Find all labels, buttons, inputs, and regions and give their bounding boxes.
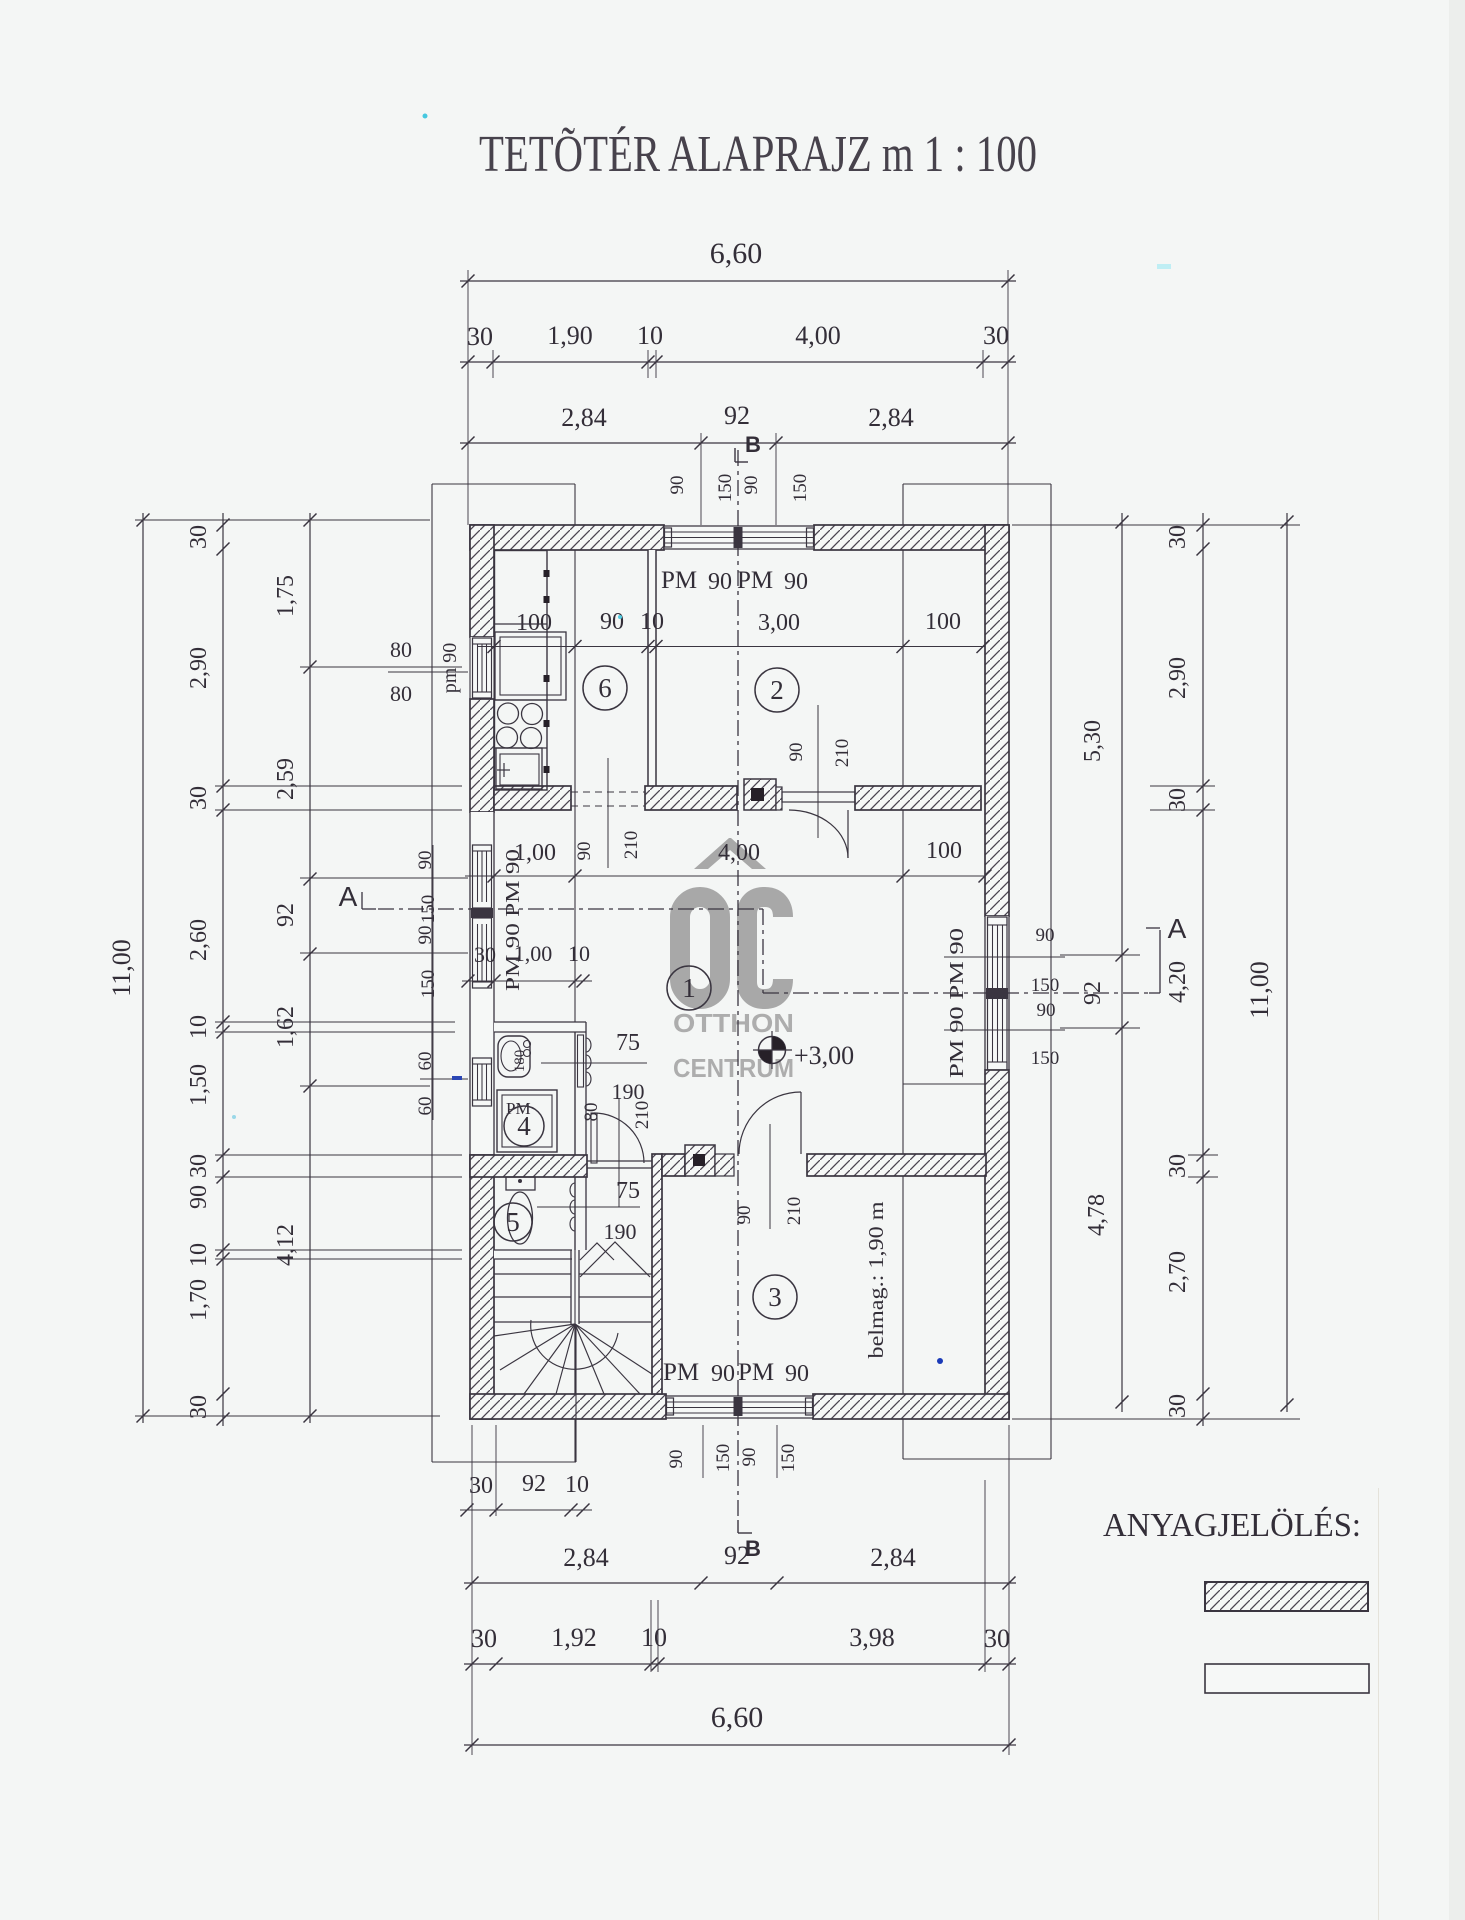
- svg-text:210: 210: [832, 739, 853, 768]
- svg-text:3,98: 3,98: [849, 1623, 895, 1652]
- svg-text:150: 150: [790, 474, 811, 503]
- svg-text:10: 10: [641, 1623, 667, 1652]
- svg-text:2,84: 2,84: [563, 1543, 609, 1572]
- svg-text:80: 80: [390, 681, 412, 706]
- svg-text:100: 100: [925, 609, 961, 635]
- svg-text:3,00: 3,00: [758, 610, 800, 636]
- svg-text:90: 90: [1036, 925, 1055, 946]
- svg-text:90: 90: [741, 476, 762, 495]
- svg-text:1,70: 1,70: [186, 1279, 212, 1321]
- svg-text:10: 10: [565, 1472, 589, 1498]
- svg-text:30: 30: [1165, 788, 1191, 812]
- svg-text:150: 150: [715, 474, 736, 503]
- svg-text:ANYAGJELÖLÉS:: ANYAGJELÖLÉS:: [1103, 1507, 1361, 1544]
- svg-text:75: 75: [616, 1030, 640, 1056]
- svg-text:30: 30: [983, 321, 1009, 350]
- svg-text:2,59: 2,59: [273, 758, 299, 800]
- svg-text:4,00: 4,00: [795, 321, 841, 350]
- svg-text:90: 90: [708, 569, 732, 595]
- svg-text:30: 30: [186, 525, 212, 549]
- svg-text:A: A: [339, 881, 358, 912]
- svg-text:PM: PM: [738, 1359, 774, 1386]
- svg-text:3: 3: [768, 1282, 782, 1312]
- svg-text:2,84: 2,84: [868, 403, 914, 432]
- svg-text:92: 92: [522, 1471, 546, 1497]
- svg-text:1,92: 1,92: [551, 1623, 597, 1652]
- svg-text:210: 210: [784, 1197, 805, 1226]
- svg-text:5,30: 5,30: [1080, 720, 1106, 762]
- svg-text:4: 4: [517, 1111, 531, 1141]
- svg-text:4,20: 4,20: [1165, 961, 1191, 1003]
- svg-text:2,90: 2,90: [1165, 657, 1191, 699]
- svg-text:2,84: 2,84: [870, 1543, 916, 1572]
- svg-text:210: 210: [632, 1101, 653, 1130]
- svg-text:10: 10: [186, 1015, 212, 1039]
- svg-text:PM: PM: [737, 567, 773, 594]
- svg-text:80: 80: [581, 1103, 602, 1122]
- svg-text:92: 92: [724, 401, 750, 430]
- svg-text:75: 75: [616, 1178, 640, 1204]
- svg-text:90: 90: [739, 1448, 760, 1467]
- svg-text:2: 2: [770, 675, 784, 705]
- svg-text:2,60: 2,60: [186, 919, 212, 961]
- svg-text:30: 30: [474, 942, 496, 967]
- svg-text:90: 90: [711, 1361, 735, 1387]
- svg-text:4,12: 4,12: [273, 1224, 299, 1266]
- svg-text:30: 30: [186, 1395, 212, 1419]
- svg-text:150: 150: [418, 970, 439, 999]
- svg-text:6,60: 6,60: [711, 1701, 764, 1734]
- svg-text:30: 30: [471, 1624, 497, 1653]
- svg-text:150: 150: [418, 895, 439, 924]
- svg-text:150: 150: [778, 1444, 799, 1473]
- svg-text:1,62: 1,62: [273, 1006, 299, 1048]
- svg-text:B: B: [745, 1536, 761, 1561]
- svg-text:11,00: 11,00: [1245, 961, 1274, 1019]
- svg-text:2,90: 2,90: [186, 647, 212, 689]
- svg-text:30: 30: [1165, 1154, 1191, 1178]
- svg-text:5: 5: [506, 1207, 520, 1237]
- svg-text:30: 30: [186, 1154, 212, 1178]
- svg-text:2,70: 2,70: [1165, 1251, 1191, 1293]
- svg-text:90: 90: [600, 609, 624, 635]
- svg-text:180: 180: [512, 1050, 528, 1073]
- svg-text:150: 150: [713, 1444, 734, 1473]
- svg-text:+3,00: +3,00: [794, 1041, 854, 1070]
- svg-text:190: 190: [604, 1219, 637, 1244]
- svg-text:90: 90: [785, 1361, 809, 1387]
- svg-text:OTTHON: OTTHON: [673, 1008, 794, 1038]
- svg-text:80: 80: [390, 637, 412, 662]
- svg-text:CENTRUM: CENTRUM: [673, 1053, 794, 1083]
- svg-text:4,78: 4,78: [1084, 1194, 1110, 1236]
- svg-text:90: 90: [574, 842, 595, 861]
- svg-text:90: 90: [786, 743, 807, 762]
- svg-text:PM 90 PM 90: PM 90 PM 90: [502, 849, 524, 991]
- svg-text:30: 30: [469, 1473, 493, 1499]
- svg-text:PM: PM: [661, 567, 697, 594]
- svg-text:6,60: 6,60: [710, 237, 763, 270]
- svg-text:pm 90: pm 90: [439, 643, 461, 694]
- svg-text:1: 1: [682, 973, 696, 1003]
- svg-text:2,84: 2,84: [561, 403, 607, 432]
- svg-text:1,90: 1,90: [547, 321, 593, 350]
- svg-text:90: 90: [666, 1450, 687, 1469]
- svg-text:10: 10: [637, 321, 663, 350]
- svg-text:150: 150: [1031, 975, 1060, 996]
- svg-text:90: 90: [186, 1185, 212, 1209]
- svg-text:A: A: [1168, 913, 1187, 944]
- svg-text:190: 190: [612, 1079, 645, 1104]
- svg-text:4,00: 4,00: [718, 840, 760, 866]
- svg-text:150: 150: [1031, 1048, 1060, 1069]
- svg-text:6: 6: [598, 673, 612, 703]
- svg-text:10: 10: [568, 941, 590, 966]
- svg-text:10: 10: [640, 609, 664, 635]
- svg-text:30: 30: [1165, 525, 1191, 549]
- svg-text:PM: PM: [663, 1359, 699, 1386]
- svg-text:PM 90 PM 90: PM 90 PM 90: [946, 928, 968, 1078]
- svg-text:30: 30: [1165, 1394, 1191, 1418]
- svg-text:90: 90: [734, 1206, 755, 1225]
- svg-text:B: B: [745, 432, 761, 457]
- svg-text:30: 30: [186, 786, 212, 810]
- svg-text:92: 92: [273, 903, 299, 927]
- svg-text:90: 90: [1037, 1000, 1056, 1021]
- svg-text:210: 210: [621, 831, 642, 860]
- svg-text:1,75: 1,75: [273, 575, 299, 617]
- svg-text:TETÕTÉR ALAPRAJZ m 1 : 100: TETÕTÉR ALAPRAJZ m 1 : 100: [479, 125, 1037, 183]
- svg-text:100: 100: [926, 838, 962, 864]
- svg-text:1,50: 1,50: [186, 1064, 212, 1106]
- svg-text:10: 10: [186, 1243, 212, 1267]
- svg-text:belmag.: 1,90 m: belmag.: 1,90 m: [864, 1202, 888, 1359]
- svg-text:30: 30: [467, 322, 493, 351]
- svg-text:90: 90: [784, 569, 808, 595]
- svg-text:90: 90: [667, 476, 688, 495]
- svg-text:11,00: 11,00: [107, 939, 136, 997]
- svg-text:30: 30: [984, 1624, 1010, 1653]
